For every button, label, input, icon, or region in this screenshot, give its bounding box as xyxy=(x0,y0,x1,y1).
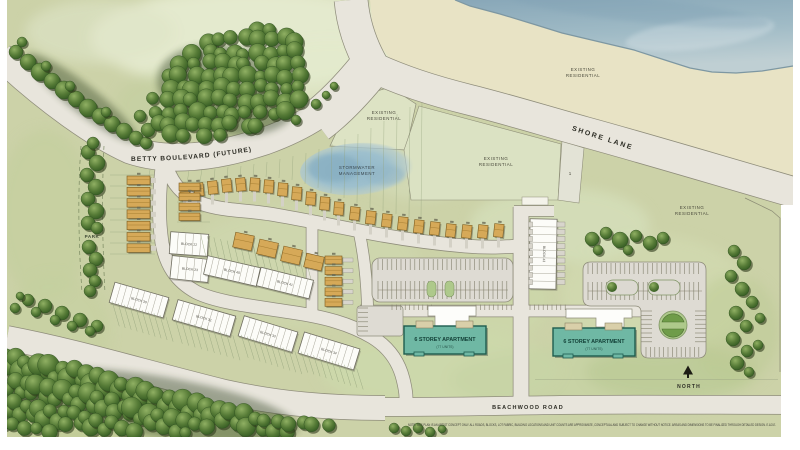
svg-text:6 STOREY APARTMENT: 6 STOREY APARTMENT xyxy=(414,337,476,343)
svg-text:RESIDENTIAL: RESIDENTIAL xyxy=(367,116,401,121)
svg-text:RESIDENTIAL: RESIDENTIAL xyxy=(675,211,709,216)
svg-text:EXISTING: EXISTING xyxy=(372,110,397,115)
svg-text:RESIDENTIAL: RESIDENTIAL xyxy=(566,73,600,78)
svg-text:RESIDENTIAL: RESIDENTIAL xyxy=(479,162,513,167)
svg-text:BEACHWOOD ROAD: BEACHWOOD ROAD xyxy=(492,405,564,411)
svg-text:MANAGEMENT: MANAGEMENT xyxy=(339,171,375,176)
svg-text:EXISTING: EXISTING xyxy=(484,156,509,161)
svg-text:EXISTING: EXISTING xyxy=(680,205,705,210)
svg-text:EXISTING: EXISTING xyxy=(571,67,596,72)
svg-text:6 STOREY APARTMENT: 6 STOREY APARTMENT xyxy=(563,339,625,345)
svg-text:(77 UNITS): (77 UNITS) xyxy=(436,345,453,349)
svg-text:NOTE: THIS PLAN IS AN ARTIST C: NOTE: THIS PLAN IS AN ARTIST CONCEPT ONL… xyxy=(408,423,776,427)
svg-text:(77 UNITS): (77 UNITS) xyxy=(585,347,602,351)
svg-text:NORTH: NORTH xyxy=(677,384,701,390)
svg-text:BLOCK 43: BLOCK 43 xyxy=(542,246,546,262)
svg-text:PARK: PARK xyxy=(85,234,100,239)
svg-text:STORMWATER: STORMWATER xyxy=(339,165,375,170)
